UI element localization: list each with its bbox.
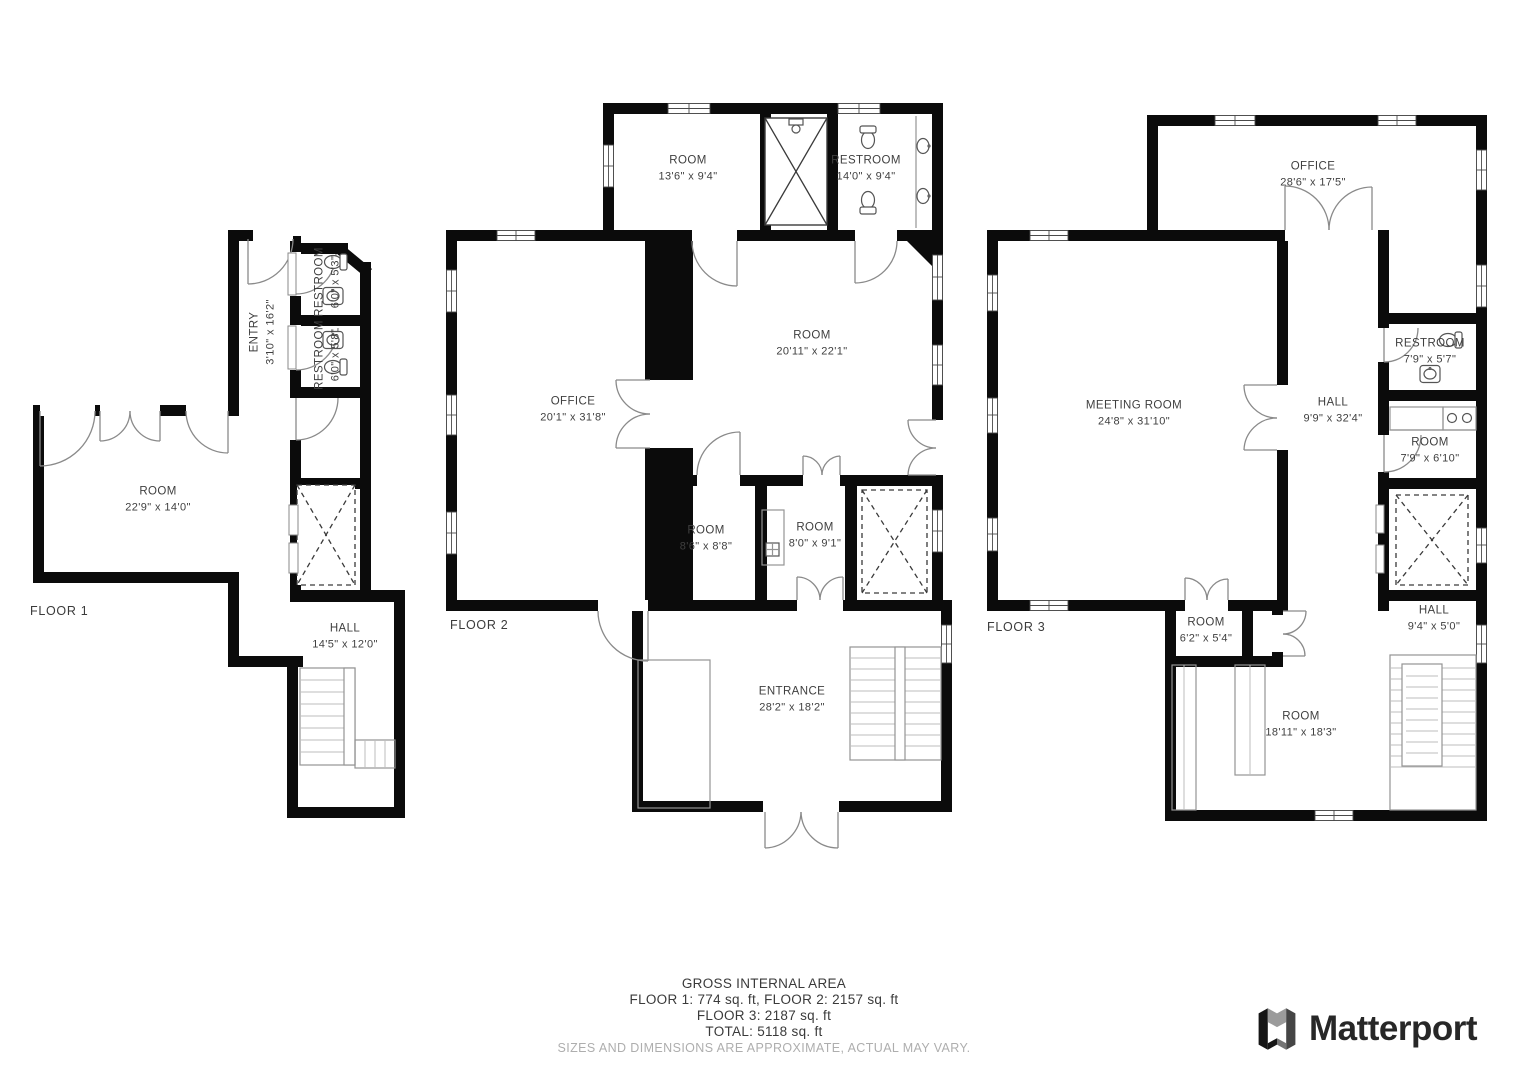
matterport-wordmark: Matterport: [1309, 1009, 1477, 1049]
room-label-restroom-f3: RESTROOM 7'9" x 5'7": [1395, 336, 1465, 369]
room-label-room-79: ROOM 7'9" x 6'10": [1400, 435, 1459, 468]
matterport-logo-icon: [1254, 1006, 1300, 1052]
floor-plan-page: ENTRY 3'10" x 16'2" RESTROOM 6'0" x 5'3"…: [0, 0, 1528, 1080]
room-label-room-80: ROOM 8'0" x 9'1": [789, 520, 842, 553]
room-label-room-f1: ROOM 22'9" x 14'0": [125, 484, 191, 517]
room-label-room-62: ROOM 6'2" x 5'4": [1180, 615, 1233, 648]
room-label-office-f3: OFFICE 28'6" x 17'5": [1280, 159, 1346, 192]
room-label-room-1811: ROOM 18'11" x 18'3": [1265, 709, 1336, 742]
room-label-restroom-1a: RESTROOM 6'0" x 5'3": [312, 247, 345, 317]
floor-3-plan: [987, 115, 1487, 821]
room-label-hall-99: HALL 9'9" x 32'4": [1303, 395, 1362, 428]
matterport-branding: Matterport: [1254, 1006, 1477, 1052]
room-label-restroom-f2: RESTROOM 14'0" x 9'4": [831, 153, 901, 186]
floor-1-plan: [33, 230, 405, 818]
room-label-hall-94: HALL 9'4" x 5'0": [1408, 603, 1461, 636]
room-label-office-f2: OFFICE 20'1" x 31'8": [540, 394, 606, 427]
floor-3-tag: FLOOR 3: [987, 620, 1045, 634]
footer-title: GROSS INTERNAL AREA: [0, 976, 1528, 992]
room-label-room-2011: ROOM 20'11" x 22'1": [776, 328, 847, 361]
floor-2-tag: FLOOR 2: [450, 618, 508, 632]
room-label-entry: ENTRY 3'10" x 16'2": [247, 299, 280, 365]
room-label-room-86: ROOM 8'6" x 8'8": [680, 523, 733, 556]
room-label-room-136: ROOM 13'6" x 9'4": [658, 153, 717, 186]
room-label-meeting-room: MEETING ROOM 24'8" x 31'10": [1086, 398, 1182, 431]
room-label-hall-f1: HALL 14'5" x 12'0": [312, 621, 378, 654]
room-label-entrance: ENTRANCE 28'2" x 18'2": [759, 684, 825, 717]
room-label-restroom-1b: RESTROOM 6'0" x 5'8": [312, 320, 345, 390]
floor-2-plan: [446, 103, 952, 848]
floor-1-tag: FLOOR 1: [30, 604, 88, 618]
